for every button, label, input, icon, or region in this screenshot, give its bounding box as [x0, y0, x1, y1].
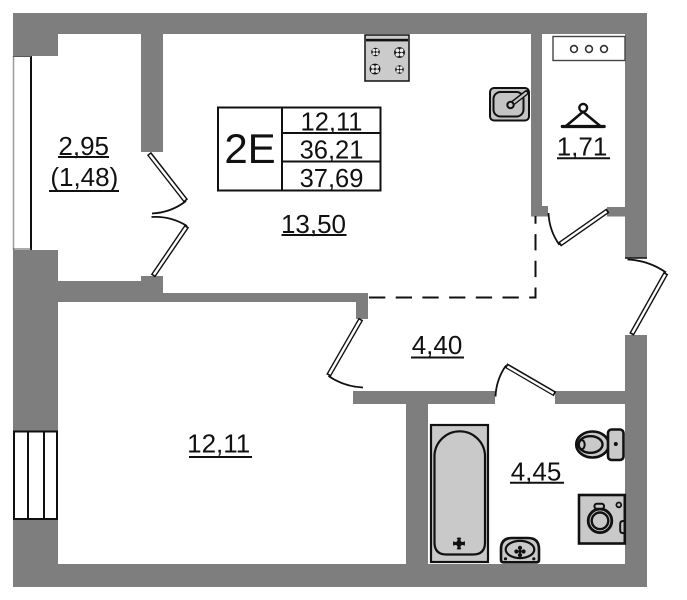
svg-text:1,71: 1,71 — [557, 132, 608, 162]
svg-text:37,69: 37,69 — [300, 165, 364, 193]
svg-text:4,40: 4,40 — [412, 330, 463, 360]
svg-text:12,11: 12,11 — [301, 109, 363, 137]
svg-text:2E: 2E — [224, 125, 275, 172]
svg-text:36,21: 36,21 — [300, 137, 364, 165]
svg-text:12,11: 12,11 — [187, 429, 250, 459]
svg-text:(1,48): (1,48) — [50, 162, 118, 192]
